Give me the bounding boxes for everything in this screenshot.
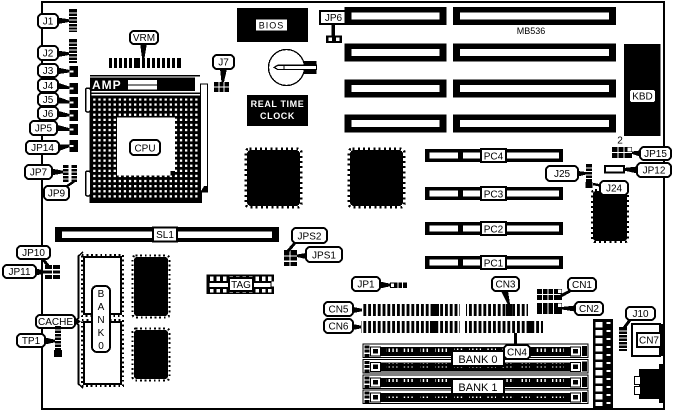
- svg-text:JP15: JP15: [644, 149, 667, 160]
- svg-text:JPS2: JPS2: [298, 232, 322, 243]
- svg-text:BIOS: BIOS: [259, 21, 285, 31]
- svg-text:J10: J10: [632, 309, 649, 320]
- svg-text:JP5: JP5: [35, 124, 53, 135]
- svg-text:J7: J7: [218, 58, 229, 69]
- svg-text:J4: J4: [43, 81, 54, 92]
- svg-text:J25: J25: [554, 169, 571, 180]
- svg-text:A: A: [98, 302, 105, 313]
- svg-text:B: B: [98, 289, 105, 300]
- svg-text:J1: J1: [43, 17, 54, 28]
- svg-text:JP7: JP7: [30, 168, 48, 179]
- svg-text:JP12: JP12: [643, 166, 666, 177]
- svg-text:J3: J3: [43, 66, 54, 77]
- svg-text:CN1: CN1: [572, 280, 592, 291]
- svg-text:VRM: VRM: [133, 33, 155, 44]
- svg-text:BANK 1: BANK 1: [458, 382, 497, 394]
- svg-text:PC1: PC1: [484, 259, 504, 270]
- svg-text:AMP: AMP: [92, 78, 122, 92]
- svg-text:JP14: JP14: [31, 143, 54, 154]
- svg-text:JP6: JP6: [325, 13, 343, 24]
- svg-text:0: 0: [98, 341, 104, 352]
- svg-text:JP1: JP1: [357, 280, 375, 291]
- svg-text:CN6: CN6: [328, 322, 348, 333]
- svg-text:CN5: CN5: [328, 305, 348, 316]
- svg-text:2: 2: [617, 136, 623, 147]
- svg-text:TP1: TP1: [22, 336, 41, 347]
- svg-text:KBD: KBD: [632, 92, 653, 103]
- svg-text:JP10: JP10: [22, 248, 45, 259]
- svg-text:TAG: TAG: [231, 280, 251, 291]
- svg-text:SL1: SL1: [156, 230, 174, 241]
- svg-text:N: N: [97, 315, 104, 326]
- svg-text:J24: J24: [606, 184, 623, 195]
- svg-text:J6: J6: [43, 109, 54, 120]
- svg-text:K: K: [98, 328, 105, 339]
- svg-text:CN4: CN4: [507, 348, 527, 359]
- svg-text:PC2: PC2: [484, 225, 504, 236]
- svg-text:REAL TIME: REAL TIME: [251, 99, 305, 109]
- svg-text:JPS1: JPS1: [312, 251, 336, 262]
- svg-text:J5: J5: [43, 95, 54, 106]
- svg-text:PC4: PC4: [484, 152, 504, 163]
- svg-text:JP11: JP11: [8, 267, 30, 278]
- svg-text:CN7: CN7: [639, 336, 659, 347]
- svg-text:PC3: PC3: [484, 190, 504, 201]
- svg-text:MB536: MB536: [517, 26, 546, 36]
- svg-text:CLOCK: CLOCK: [260, 111, 295, 121]
- svg-text:BANK 0: BANK 0: [458, 354, 497, 366]
- svg-text:CPU: CPU: [134, 144, 155, 155]
- svg-text:CN3: CN3: [495, 280, 515, 291]
- svg-text:J2: J2: [43, 49, 54, 60]
- svg-text:JP9: JP9: [48, 189, 66, 200]
- svg-text:CN2: CN2: [579, 304, 599, 315]
